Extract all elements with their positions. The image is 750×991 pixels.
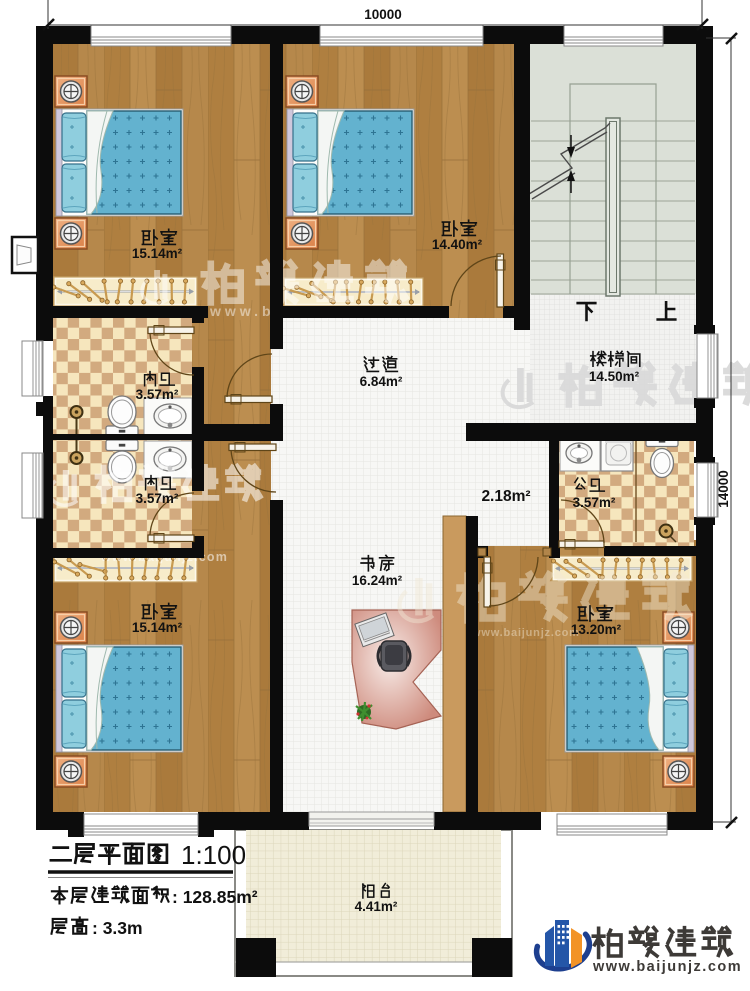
svg-text:16.24m²: 16.24m²: [352, 573, 403, 588]
svg-text:2.18m²: 2.18m²: [481, 488, 530, 505]
svg-text:3.57m²: 3.57m²: [573, 495, 616, 510]
svg-text:15.14m²: 15.14m²: [132, 246, 183, 261]
svg-text:www.baijunjz.com: www.baijunjz.com: [471, 627, 580, 639]
svg-text:13.20m²: 13.20m²: [571, 622, 622, 637]
svg-text:14000: 14000: [716, 470, 731, 508]
svg-text:3.57m²: 3.57m²: [136, 491, 179, 506]
svg-text:6.84m²: 6.84m²: [360, 374, 403, 389]
svg-text:3.57m²: 3.57m²: [136, 387, 179, 402]
svg-text:www.baijunjz.com: www.baijunjz.com: [592, 959, 742, 975]
svg-text:: 3.3m: : 3.3m: [92, 918, 143, 938]
svg-text:10000: 10000: [364, 7, 402, 22]
svg-text:14.50m²: 14.50m²: [589, 369, 640, 384]
svg-text:: 128.85m²: : 128.85m²: [172, 887, 258, 907]
svg-text:15.14m²: 15.14m²: [132, 620, 183, 635]
svg-text:4.41m²: 4.41m²: [355, 899, 398, 914]
svg-text:1:100: 1:100: [181, 840, 246, 870]
svg-text:14.40m²: 14.40m²: [432, 237, 483, 252]
